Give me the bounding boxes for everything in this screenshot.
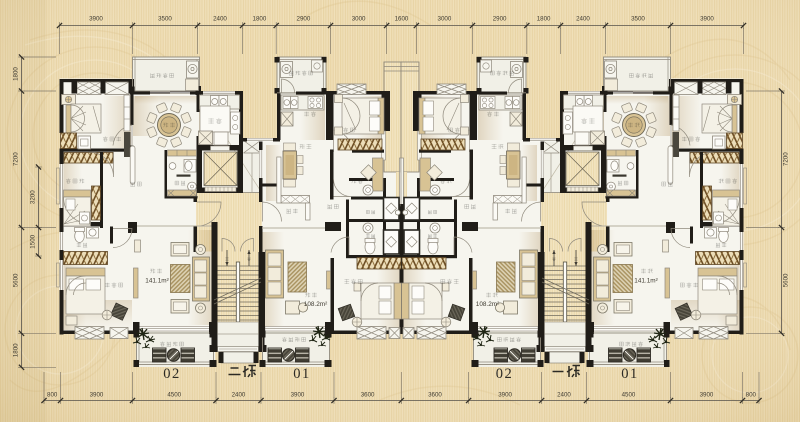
svg-text:3600: 3600 bbox=[361, 392, 375, 399]
svg-text:4500: 4500 bbox=[167, 392, 181, 399]
svg-text:2400: 2400 bbox=[213, 16, 227, 23]
svg-text:2400: 2400 bbox=[232, 392, 246, 399]
svg-text:1500: 1500 bbox=[30, 234, 37, 248]
svg-text:7200: 7200 bbox=[783, 152, 790, 166]
svg-text:800: 800 bbox=[47, 392, 58, 399]
svg-text:3200: 3200 bbox=[30, 190, 37, 204]
svg-text:5600: 5600 bbox=[783, 273, 790, 287]
svg-text:1800: 1800 bbox=[13, 343, 20, 357]
svg-text:3500: 3500 bbox=[631, 16, 645, 23]
svg-text:3500: 3500 bbox=[158, 16, 172, 23]
svg-text:1800: 1800 bbox=[253, 16, 267, 23]
svg-text:3000: 3000 bbox=[352, 16, 366, 23]
svg-text:141.1m²: 141.1m² bbox=[145, 278, 168, 285]
svg-text:108.2m²: 108.2m² bbox=[476, 301, 499, 308]
svg-text:3900: 3900 bbox=[90, 392, 104, 399]
svg-text:01: 01 bbox=[621, 366, 639, 382]
svg-text:1800: 1800 bbox=[13, 67, 20, 81]
svg-text:02: 02 bbox=[163, 366, 181, 382]
svg-text:3600: 3600 bbox=[428, 392, 442, 399]
svg-text:3900: 3900 bbox=[700, 16, 714, 23]
svg-text:3900: 3900 bbox=[498, 392, 512, 399]
svg-text:2400: 2400 bbox=[576, 16, 590, 23]
svg-text:01: 01 bbox=[293, 366, 311, 382]
svg-text:108.2m²: 108.2m² bbox=[304, 301, 327, 308]
svg-text:5600: 5600 bbox=[13, 273, 20, 287]
svg-text:2400: 2400 bbox=[557, 392, 571, 399]
svg-text:3900: 3900 bbox=[291, 392, 305, 399]
svg-text:1600: 1600 bbox=[395, 16, 409, 23]
svg-text:02: 02 bbox=[496, 366, 514, 382]
svg-text:4500: 4500 bbox=[622, 392, 636, 399]
svg-text:3900: 3900 bbox=[700, 392, 714, 399]
svg-text:3000: 3000 bbox=[438, 16, 452, 23]
svg-text:1800: 1800 bbox=[537, 16, 551, 23]
svg-text:3900: 3900 bbox=[89, 16, 103, 23]
svg-text:800: 800 bbox=[746, 392, 757, 399]
svg-text:2900: 2900 bbox=[297, 16, 311, 23]
svg-text:7200: 7200 bbox=[13, 152, 20, 166]
svg-text:2900: 2900 bbox=[493, 16, 507, 23]
svg-text:141.1m²: 141.1m² bbox=[634, 278, 657, 285]
